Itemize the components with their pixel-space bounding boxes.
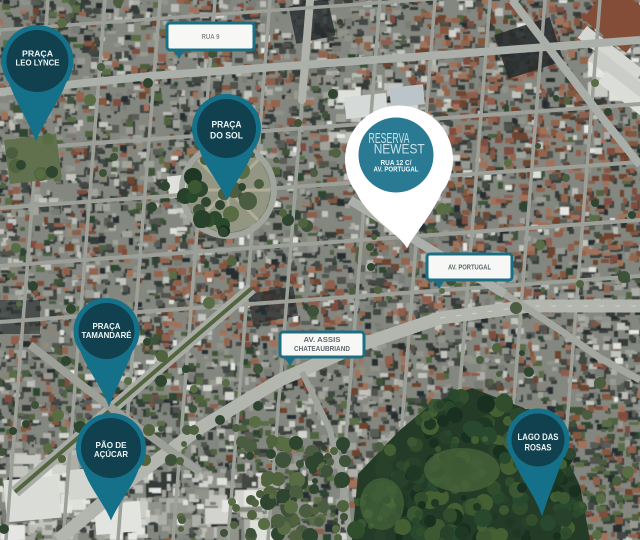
svg-text:NEWEST: NEWEST xyxy=(374,141,425,157)
svg-text:RUA 9: RUA 9 xyxy=(202,34,220,41)
svg-text:AV. PORTUGAL: AV. PORTUGAL xyxy=(448,265,492,272)
svg-text:PÃO DEAÇÚCAR: PÃO DEAÇÚCAR xyxy=(94,440,128,459)
svg-text:PRAÇADO SOL: PRAÇADO SOL xyxy=(210,119,243,141)
svg-text:AV. PORTUGAL: AV. PORTUGAL xyxy=(374,165,419,174)
